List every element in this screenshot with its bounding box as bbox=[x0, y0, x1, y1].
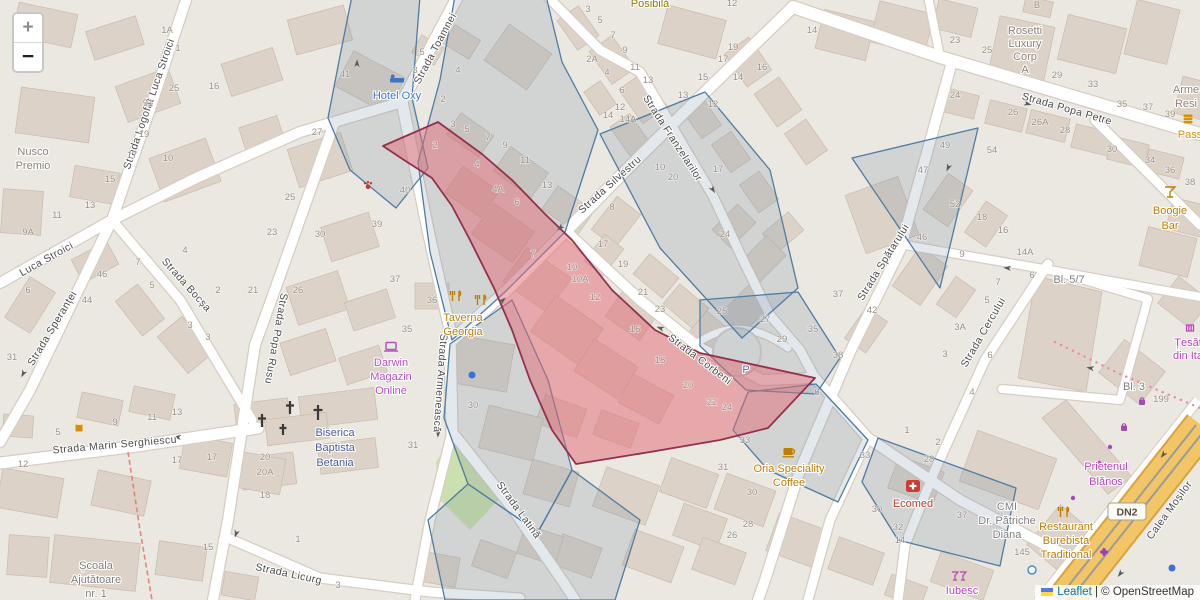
house-number: 47 bbox=[918, 165, 929, 176]
poi-label-biserica-baptista-betania: Betania bbox=[316, 457, 354, 469]
poi-label-prietenul-blanos: Prietenul bbox=[1084, 461, 1127, 473]
house-number: B bbox=[1034, 0, 1040, 11]
house-number: 21 bbox=[248, 285, 259, 296]
poi-label-rosetti-luxury-corp: Corp bbox=[1013, 51, 1037, 63]
house-number: 1 bbox=[295, 534, 300, 545]
house-number: 37 bbox=[390, 274, 401, 285]
house-number: 26 bbox=[727, 530, 738, 541]
poi-label-cmi-dr-patriche-diana: Diana bbox=[993, 529, 1023, 541]
poi-label-restaurant-burebista: Traditional bbox=[1041, 549, 1092, 561]
house-number: 20A bbox=[257, 467, 275, 478]
house-number: 13 bbox=[542, 180, 553, 191]
house-number: 3 bbox=[335, 580, 340, 591]
house-number: 24 bbox=[722, 402, 733, 413]
house-number: 28 bbox=[924, 454, 935, 465]
house-number: 5 bbox=[55, 427, 60, 438]
house-number: 9 bbox=[622, 45, 627, 56]
poi-label-ecomed: Ecomed bbox=[893, 498, 933, 510]
house-number: 17 bbox=[207, 452, 218, 463]
house-number: 14A bbox=[620, 114, 638, 125]
house-number: 24 bbox=[720, 229, 731, 240]
poi-label-biserica-baptista-betania: Baptista bbox=[315, 442, 356, 454]
house-number: 29 bbox=[777, 334, 788, 345]
house-number: 16 bbox=[630, 324, 641, 335]
house-number: 12 bbox=[18, 459, 29, 470]
house-number: 38 bbox=[833, 350, 844, 361]
poi-label-restaurant-burebista: Burebista bbox=[1043, 535, 1090, 547]
house-number: 15 bbox=[203, 542, 214, 553]
house-number: 13 bbox=[172, 407, 183, 418]
house-number: 6 bbox=[987, 350, 992, 361]
house-number: 14 bbox=[895, 535, 906, 546]
house-number: 35 bbox=[402, 324, 413, 335]
house-number: 10 bbox=[567, 262, 578, 273]
house-number: 7 bbox=[995, 277, 1000, 288]
poi-label-scoala-ajutatoare: Ajutătoare bbox=[71, 574, 121, 586]
house-number: 3 bbox=[205, 332, 210, 343]
attribution-separator: | © bbox=[1092, 586, 1113, 598]
house-number: 37 bbox=[833, 289, 844, 300]
poi-label-armen-resid: Resi bbox=[1175, 98, 1197, 110]
house-number: 23 bbox=[950, 35, 961, 46]
poi-label-scoala-ajutatoare: Școala bbox=[79, 560, 114, 572]
house-number: 19 bbox=[618, 259, 629, 270]
house-number: 3 bbox=[942, 349, 947, 360]
house-number: 4 bbox=[604, 67, 609, 78]
house-number: 91 bbox=[143, 98, 154, 109]
house-number: 3 bbox=[585, 4, 590, 15]
house-number: 6 bbox=[1029, 270, 1034, 281]
house-number: 4 bbox=[969, 387, 974, 398]
house-number: 13 bbox=[643, 75, 654, 86]
house-number: 199 bbox=[1153, 394, 1169, 405]
house-number: 25 bbox=[717, 306, 728, 317]
house-number: 13 bbox=[85, 200, 96, 211]
poi-label-nusco-premio: Premio bbox=[16, 160, 51, 172]
building bbox=[15, 87, 95, 143]
poi-label-bloc-5-7: Bl. 5/7 bbox=[1053, 274, 1084, 286]
burger-icon bbox=[1184, 115, 1193, 124]
house-number: 14 bbox=[807, 25, 818, 36]
poi-label-scoala-ajutatoare: nr. 1 bbox=[85, 588, 106, 600]
dn2-ref-label: DN2 bbox=[1116, 507, 1137, 519]
house-number: 12 bbox=[727, 0, 738, 9]
house-number: 2 bbox=[440, 94, 445, 105]
house-number: 37 bbox=[957, 510, 968, 521]
poi-label-restaurant-burebista: Restaurant bbox=[1039, 521, 1093, 533]
house-number: 2 bbox=[432, 140, 437, 151]
house-number: 30 bbox=[1107, 144, 1118, 155]
house-number: 6 bbox=[25, 285, 30, 296]
house-number: 9 bbox=[112, 417, 117, 428]
house-number: 17 bbox=[172, 455, 183, 466]
house-number: 5 bbox=[149, 280, 154, 291]
house-number: 35 bbox=[808, 324, 819, 335]
house-number: 35 bbox=[1117, 99, 1128, 110]
house-number: 6 bbox=[619, 85, 624, 96]
building bbox=[155, 541, 207, 581]
house-number: 32 bbox=[893, 522, 904, 533]
house-number: 12 bbox=[708, 99, 719, 110]
house-number: 44 bbox=[82, 295, 93, 306]
house-number: 23 bbox=[655, 304, 666, 315]
house-number: 14A bbox=[1017, 247, 1035, 258]
house-number: 31 bbox=[408, 440, 419, 451]
attribution-bar: Leaflet | © OpenStreetMap bbox=[1035, 585, 1200, 600]
poi-label-taverna-georgia: Taverna bbox=[443, 312, 483, 324]
poi-label-boogie-bar: Boogie bbox=[1153, 205, 1187, 217]
house-number: 5 bbox=[419, 47, 424, 58]
house-number: 54 bbox=[987, 145, 998, 156]
house-number: 3 bbox=[412, 65, 417, 76]
house-number: 46 bbox=[97, 269, 108, 280]
house-number: 4 bbox=[182, 245, 187, 256]
house-number: 24 bbox=[950, 90, 961, 101]
poi-label-tesaturi: Țesăt bbox=[1174, 337, 1200, 349]
house-number: 14 bbox=[603, 110, 614, 121]
poi-label-armen-resid: Arme bbox=[1173, 84, 1199, 96]
medical-cross-icon bbox=[906, 480, 920, 492]
house-number: 3 bbox=[450, 119, 455, 130]
house-number: 12 bbox=[590, 292, 601, 303]
house-number: 11 bbox=[520, 155, 530, 166]
poi-label-hotel-oxy: Hotel Oxy bbox=[373, 90, 422, 102]
house-number: 25 bbox=[285, 192, 296, 203]
house-number: 3 bbox=[187, 320, 192, 331]
house-number: 39 bbox=[1165, 109, 1176, 120]
house-number: 26A bbox=[1032, 117, 1050, 128]
house-number: 20 bbox=[683, 380, 694, 391]
house-number: 34 bbox=[1145, 155, 1156, 166]
poi-label-oria-speciality-coffee: Coffee bbox=[773, 477, 805, 489]
house-number: 17 bbox=[718, 54, 729, 65]
house-number: 4 bbox=[474, 159, 479, 170]
leaflet-link[interactable]: Leaflet bbox=[1057, 586, 1092, 598]
house-number: 15 bbox=[698, 72, 709, 83]
house-number: 49 bbox=[940, 140, 951, 151]
house-number: 27 bbox=[312, 127, 323, 138]
house-number: 5 bbox=[597, 15, 602, 26]
house-number: 27 bbox=[760, 314, 771, 325]
house-number: 9A bbox=[22, 227, 34, 238]
house-number: 19 bbox=[728, 42, 739, 53]
house-number: 7 bbox=[530, 249, 535, 260]
house-number: 2 bbox=[215, 285, 220, 296]
poi-label-oria-speciality-coffee: Oria Speciality bbox=[754, 463, 825, 475]
house-number: 11 bbox=[630, 62, 640, 73]
house-number: 42 bbox=[867, 305, 878, 316]
house-number: 11 bbox=[52, 210, 62, 221]
house-number: 10A bbox=[572, 274, 590, 285]
house-number: 46 bbox=[917, 232, 928, 243]
zoom-out-button[interactable]: − bbox=[14, 42, 42, 71]
house-number: 38 bbox=[1185, 177, 1196, 188]
poi-label-prietenul-blanos: Blănos bbox=[1089, 476, 1123, 488]
house-number: 30 bbox=[468, 400, 479, 411]
house-number: 37 bbox=[1143, 102, 1154, 113]
house-number: 3A bbox=[954, 322, 966, 333]
zoom-in-button[interactable]: + bbox=[14, 14, 42, 42]
house-number: 17 bbox=[713, 164, 724, 175]
house-number: 16 bbox=[998, 225, 1009, 236]
poi-label-boogie-bar: Bar bbox=[1161, 220, 1178, 232]
poi-label-posibila: Posibilă bbox=[631, 0, 670, 10]
house-number: 4 bbox=[455, 65, 460, 76]
house-number: 14 bbox=[733, 72, 744, 83]
house-number: 28 bbox=[1060, 125, 1071, 136]
house-number: 25 bbox=[982, 45, 993, 56]
house-number: 4A bbox=[492, 184, 504, 195]
house-number: 26 bbox=[1008, 107, 1019, 118]
dn2-road-badge: DN2 bbox=[1108, 503, 1146, 520]
house-number: 23 bbox=[267, 227, 278, 238]
house-number: 11 bbox=[147, 412, 157, 423]
house-number: 30 bbox=[872, 504, 883, 515]
house-number: 1 bbox=[175, 43, 180, 54]
poi-dot-icon bbox=[469, 372, 476, 379]
house-number: 25 bbox=[169, 83, 180, 94]
house-number: 5 bbox=[984, 295, 989, 306]
map-viewport[interactable]: DN2 Strada Logofăt Luca StroiciLuca Stro… bbox=[0, 0, 1200, 600]
house-number: 16 bbox=[209, 81, 220, 92]
poi-label-rosetti-luxury-corp: A bbox=[1021, 64, 1029, 76]
house-number: 10 bbox=[655, 162, 666, 173]
house-number: 9 bbox=[502, 140, 507, 151]
house-number: 2A bbox=[586, 54, 598, 65]
house-number: 15 bbox=[105, 174, 116, 185]
house-number: 39 bbox=[372, 219, 383, 230]
house-number: 1 bbox=[904, 425, 909, 436]
house-number: 2 bbox=[935, 437, 940, 448]
house-number: 12 bbox=[615, 102, 626, 113]
house-number: 33 bbox=[740, 435, 751, 446]
poi-label-rosetti-luxury-corp: Luxury bbox=[1008, 38, 1042, 50]
house-number: 18 bbox=[655, 355, 666, 366]
map-canvas[interactable]: DN2 Strada Logofăt Luca StroiciLuca Stro… bbox=[0, 0, 1200, 600]
beer-icon bbox=[76, 423, 83, 432]
house-number: 7 bbox=[610, 30, 615, 41]
house-number: 5 bbox=[464, 124, 469, 135]
poi-label-bloc-3: Bl. 3 bbox=[1123, 381, 1145, 393]
house-number: 145 bbox=[1014, 547, 1030, 558]
house-number: 1A bbox=[161, 25, 173, 36]
house-number: 13 bbox=[678, 90, 689, 101]
house-number: 7 bbox=[485, 132, 490, 143]
poi-dot-icon bbox=[1169, 565, 1176, 572]
zoom-control: + − bbox=[12, 12, 44, 73]
poi-label-cmi-dr-patriche-diana: Dr. Pătriche bbox=[978, 515, 1035, 527]
ukraine-flag-icon bbox=[1041, 588, 1053, 596]
house-number: 28 bbox=[743, 519, 754, 530]
house-number: 17 bbox=[127, 150, 138, 161]
house-number: 18 bbox=[977, 212, 988, 223]
poi-label-darwin-magazin-online: Darwin bbox=[374, 357, 408, 369]
poi-label-taverna-georgia: Georgia bbox=[443, 326, 483, 338]
house-number: 30 bbox=[747, 487, 758, 498]
house-number: 16 bbox=[757, 62, 768, 73]
house-number: 33 bbox=[860, 450, 871, 461]
house-number: 36 bbox=[427, 295, 438, 306]
house-number: 8 bbox=[609, 202, 614, 213]
osm-credit-link[interactable]: OpenStreetMap bbox=[1113, 586, 1194, 598]
house-number: 19 bbox=[139, 129, 150, 140]
house-number: 17 bbox=[598, 239, 609, 250]
house-number: 10 bbox=[163, 153, 174, 164]
house-number: 20 bbox=[260, 452, 271, 463]
house-number: 29 bbox=[1052, 70, 1063, 81]
house-number: 33 bbox=[1088, 79, 1099, 90]
house-number: 7 bbox=[135, 257, 140, 268]
poi-label-iubesc: Iubesc bbox=[946, 585, 979, 597]
poi-label-biserica-baptista-betania: Biserica bbox=[315, 427, 355, 439]
house-number: 52 bbox=[950, 199, 961, 210]
poi-label-parking: P bbox=[742, 364, 749, 376]
house-number: 6 bbox=[514, 197, 519, 208]
house-number: 21 bbox=[638, 287, 649, 298]
house-number: 9 bbox=[959, 249, 964, 260]
poi-label-nusco-premio: Nusco bbox=[17, 146, 48, 158]
house-number: 26 bbox=[293, 285, 304, 296]
poi-label-tesaturi: din Ita bbox=[1173, 350, 1200, 362]
poi-ring-icon bbox=[1028, 566, 1036, 574]
house-number: 30 bbox=[315, 229, 326, 240]
house-number: 20 bbox=[668, 172, 679, 183]
poi-label-rosetti-luxury-corp: Rosetti bbox=[1008, 25, 1042, 37]
house-number: 6 bbox=[814, 387, 819, 398]
poi-label-cmi-dr-patriche-diana: CMI bbox=[997, 501, 1017, 513]
house-number: 31 bbox=[7, 352, 18, 363]
house-number: 18 bbox=[260, 490, 271, 501]
poi-label-darwin-magazin-online: Magazin bbox=[370, 371, 412, 383]
house-number: 41 bbox=[340, 69, 351, 80]
house-number: 22 bbox=[707, 397, 718, 408]
house-number: 31 bbox=[718, 462, 729, 473]
house-number: 40 bbox=[400, 185, 411, 196]
building bbox=[7, 535, 50, 578]
poi-label-pass: Pass bbox=[1178, 129, 1200, 141]
house-number: 36 bbox=[1165, 165, 1176, 176]
poi-label-darwin-magazin-online: Online bbox=[375, 385, 407, 397]
